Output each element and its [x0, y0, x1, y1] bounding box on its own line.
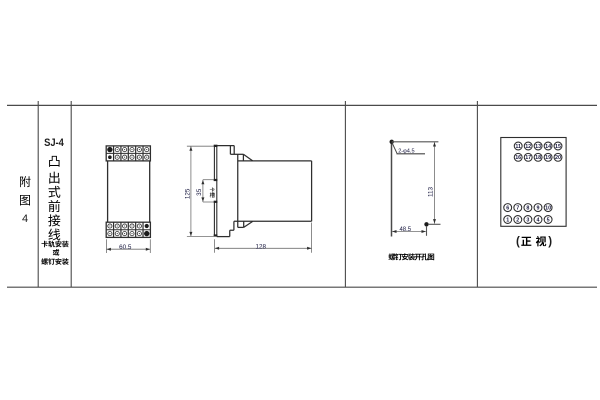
svg-text:11: 11 — [515, 144, 521, 150]
svg-text:8: 8 — [526, 206, 529, 212]
svg-text:125: 125 — [184, 188, 191, 199]
svg-text:18: 18 — [535, 155, 541, 161]
svg-text:4: 4 — [22, 213, 28, 225]
svg-text:13: 13 — [535, 144, 541, 150]
svg-text:19: 19 — [545, 155, 551, 161]
svg-text:3: 3 — [526, 217, 529, 223]
svg-text:35: 35 — [196, 188, 203, 196]
svg-text:(: ( — [516, 236, 520, 248]
svg-text:12: 12 — [525, 144, 531, 150]
svg-text:20: 20 — [555, 155, 561, 161]
svg-text:128: 128 — [256, 244, 267, 251]
svg-text:16: 16 — [515, 155, 521, 161]
svg-text:7: 7 — [516, 206, 519, 212]
svg-text:60.5: 60.5 — [119, 244, 132, 251]
svg-text:): ) — [548, 236, 552, 248]
svg-text:2-φ4.5: 2-φ4.5 — [398, 149, 414, 155]
svg-text:14: 14 — [545, 144, 551, 150]
svg-text:17: 17 — [525, 155, 531, 161]
svg-text:15: 15 — [555, 144, 561, 150]
svg-text:5: 5 — [547, 217, 550, 223]
svg-text:4: 4 — [537, 217, 540, 223]
svg-text:1: 1 — [506, 217, 509, 223]
svg-text:113: 113 — [428, 186, 435, 197]
svg-text:10: 10 — [545, 206, 551, 212]
svg-text:6: 6 — [506, 206, 509, 212]
svg-text:2: 2 — [516, 217, 519, 223]
svg-text:48.5: 48.5 — [399, 227, 411, 233]
svg-text:9: 9 — [537, 206, 540, 212]
svg-text:SJ-4: SJ-4 — [44, 137, 65, 149]
